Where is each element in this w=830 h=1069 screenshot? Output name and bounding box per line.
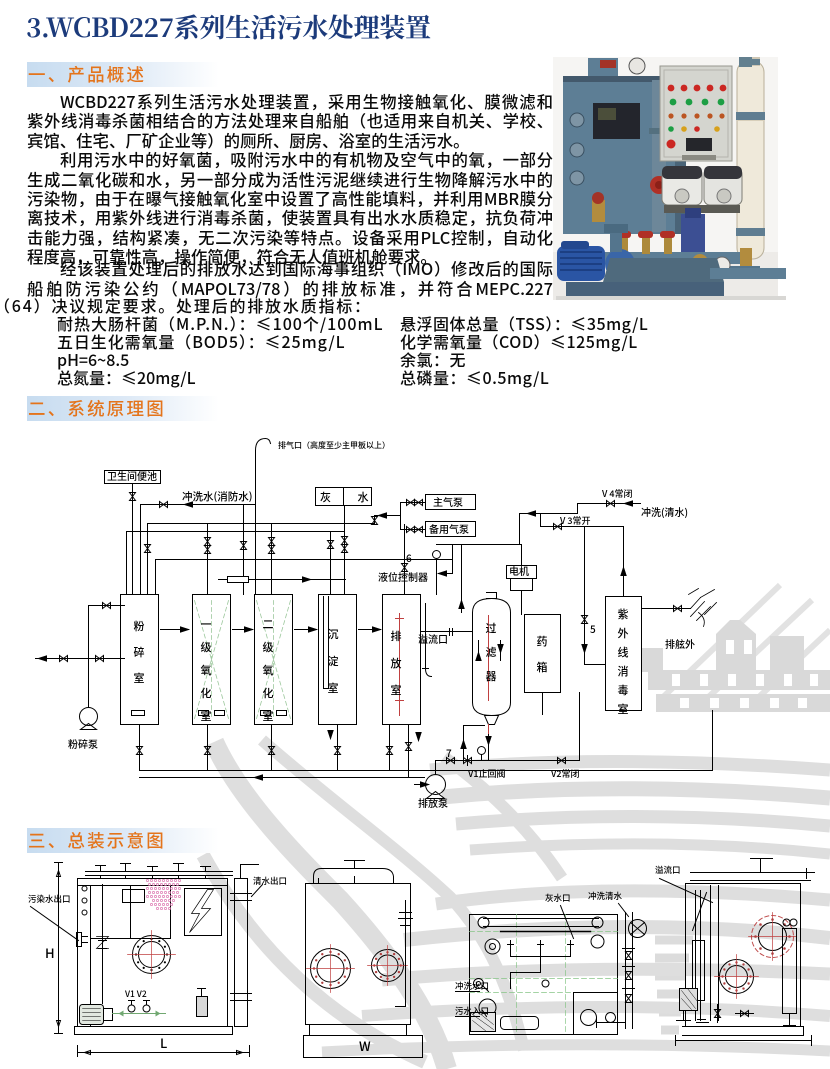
svg-text:V1 V2: V1 V2 bbox=[124, 988, 147, 1000]
svg-text:清水出口: 清水出口 bbox=[253, 875, 287, 887]
svg-text:V 3常开: V 3常开 bbox=[559, 514, 591, 527]
svg-text:排舷外: 排舷外 bbox=[665, 636, 695, 651]
svg-text:冲洗(清水): 冲洗(清水) bbox=[641, 504, 688, 519]
svg-text:冲洗水(消防水): 冲洗水(消防水) bbox=[182, 489, 252, 504]
svg-text:冲洗清水: 冲洗清水 bbox=[588, 890, 623, 902]
svg-text:粉碎室: 粉碎室 bbox=[134, 618, 145, 686]
svg-text:备用气泵: 备用气泵 bbox=[429, 521, 469, 536]
svg-text:沉淀室: 沉淀室 bbox=[328, 626, 339, 696]
svg-text:液位控制器: 液位控制器 bbox=[378, 569, 428, 584]
svg-text:7: 7 bbox=[446, 745, 452, 760]
svg-text:排气口: 排气口 bbox=[350, 855, 376, 856]
svg-text:灰 水: 灰 水 bbox=[320, 489, 380, 505]
svg-text:污水入口: 污水入口 bbox=[455, 1005, 489, 1017]
svg-text:5: 5 bbox=[590, 621, 596, 636]
svg-text:粉碎泵: 粉碎泵 bbox=[68, 736, 98, 751]
svg-text:排放室: 排放室 bbox=[391, 628, 402, 698]
svg-text:V 4常闭: V 4常闭 bbox=[601, 487, 633, 500]
svg-text:排放泵: 排放泵 bbox=[418, 795, 448, 810]
svg-text:冲洗水口: 冲洗水口 bbox=[455, 980, 489, 992]
svg-text:污染水出口: 污染水出口 bbox=[28, 893, 71, 905]
svg-text:W: W bbox=[359, 1036, 371, 1055]
svg-text:卫生间便池: 卫生间便池 bbox=[107, 468, 157, 483]
svg-text:6: 6 bbox=[406, 550, 412, 565]
svg-text:排气口（高度至少主甲板以上）: 排气口（高度至少主甲板以上） bbox=[278, 440, 390, 451]
svg-text:V2常闭: V2常闭 bbox=[550, 767, 579, 780]
svg-text:溢流口: 溢流口 bbox=[655, 864, 681, 876]
svg-text:V1止回阀: V1止回阀 bbox=[467, 767, 505, 780]
svg-text:L: L bbox=[160, 1033, 167, 1052]
svg-text:过滤器: 过滤器 bbox=[486, 620, 497, 684]
svg-text:溢流口: 溢流口 bbox=[418, 631, 448, 646]
svg-text:主气泵: 主气泵 bbox=[433, 494, 463, 509]
svg-text:电机: 电机 bbox=[509, 563, 529, 578]
svg-text:灰水口: 灰水口 bbox=[545, 892, 571, 904]
svg-text:H: H bbox=[45, 943, 55, 962]
